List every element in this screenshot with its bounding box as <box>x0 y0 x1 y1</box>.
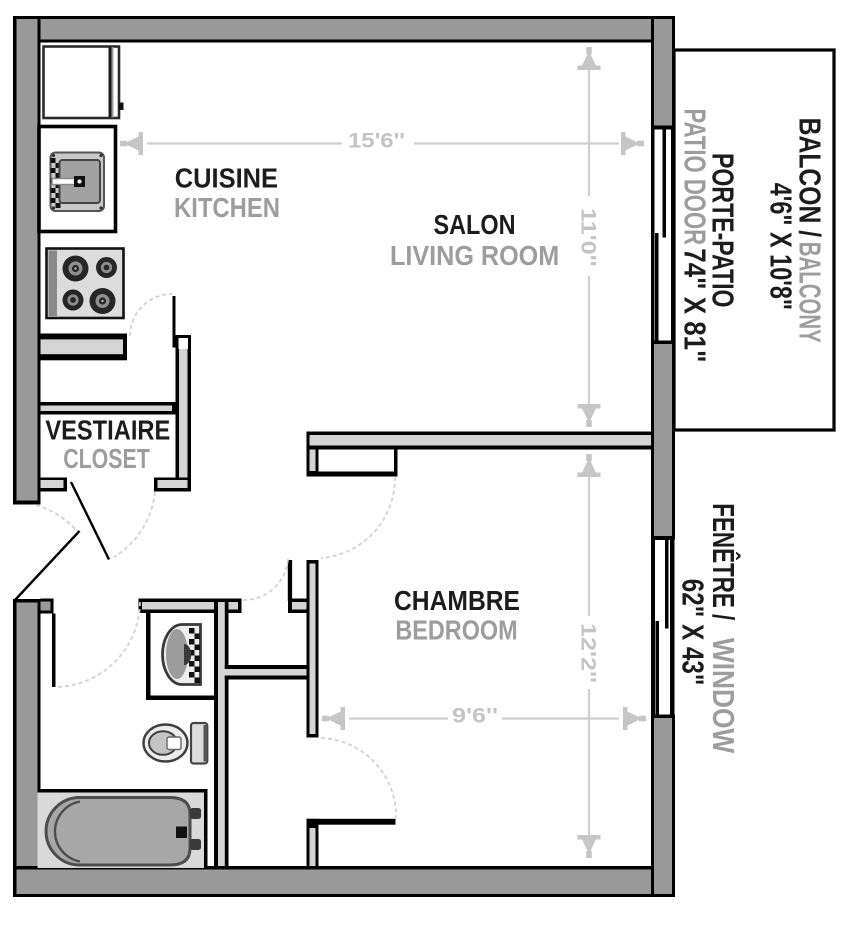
svg-text:4'6" X 10'8": 4'6" X 10'8" <box>764 183 799 310</box>
svg-text:12'2'': 12'2'' <box>577 623 601 683</box>
svg-text:KITCHEN: KITCHEN <box>174 193 280 223</box>
svg-text:BEDROOM: BEDROOM <box>395 616 517 646</box>
svg-text:CLOSET: CLOSET <box>63 445 150 475</box>
svg-text:74" X 81": 74" X 81" <box>677 248 712 362</box>
svg-text:CUISINE: CUISINE <box>175 163 278 194</box>
svg-text:LIVING ROOM: LIVING ROOM <box>390 240 559 271</box>
svg-text:11'0'': 11'0'' <box>577 208 601 267</box>
svg-text:SALON: SALON <box>434 210 516 240</box>
svg-text:62" X 43": 62" X 43" <box>676 579 711 686</box>
svg-text:CHAMBRE: CHAMBRE <box>394 585 520 617</box>
svg-text:PATIO DOOR: PATIO DOOR <box>678 109 713 246</box>
svg-text:VESTIAIRE: VESTIAIRE <box>45 416 170 446</box>
svg-text:FENÊTRE /: FENÊTRE / <box>706 503 742 620</box>
svg-text:15'6'': 15'6'' <box>348 129 405 152</box>
svg-text:9'6'': 9'6'' <box>452 703 498 727</box>
